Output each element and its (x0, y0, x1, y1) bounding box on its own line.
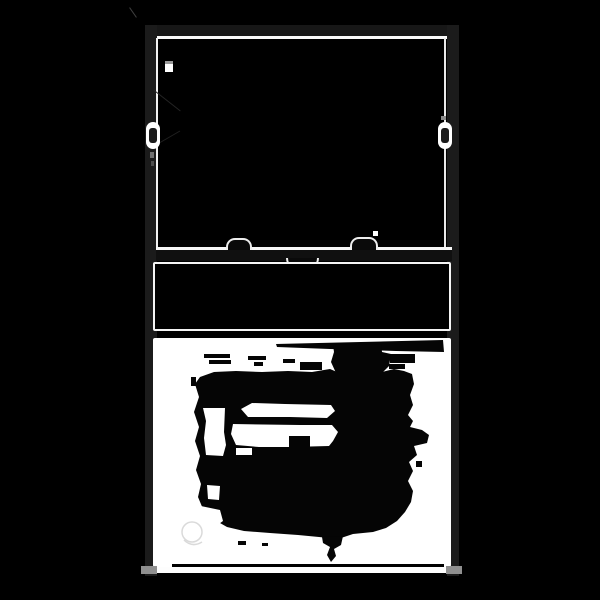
scratch-mark (129, 7, 137, 17)
bottom-panel (153, 338, 451, 567)
window-illustration (0, 0, 600, 600)
rail-speck (373, 231, 378, 236)
sill-foot-right (446, 566, 462, 574)
sill-strip (150, 567, 454, 573)
latch-speck (151, 161, 154, 166)
rail-tilt-latch-right (350, 237, 378, 250)
faint-scribble (182, 522, 202, 545)
rail-tilt-latch-left (226, 238, 252, 250)
latch-speck (150, 152, 154, 158)
tilt-latch-left (146, 122, 160, 149)
latch-speck (441, 116, 446, 120)
sill-foot-left (141, 566, 157, 574)
tilt-latch-right-slot (441, 128, 449, 143)
tilt-latch-left-slot (149, 128, 157, 143)
tilt-latch-right (438, 122, 452, 149)
lower-sash (153, 262, 451, 331)
upper-sash-top-line (157, 36, 447, 39)
vent-stop (165, 61, 173, 72)
silhouette-graphic (153, 338, 451, 567)
